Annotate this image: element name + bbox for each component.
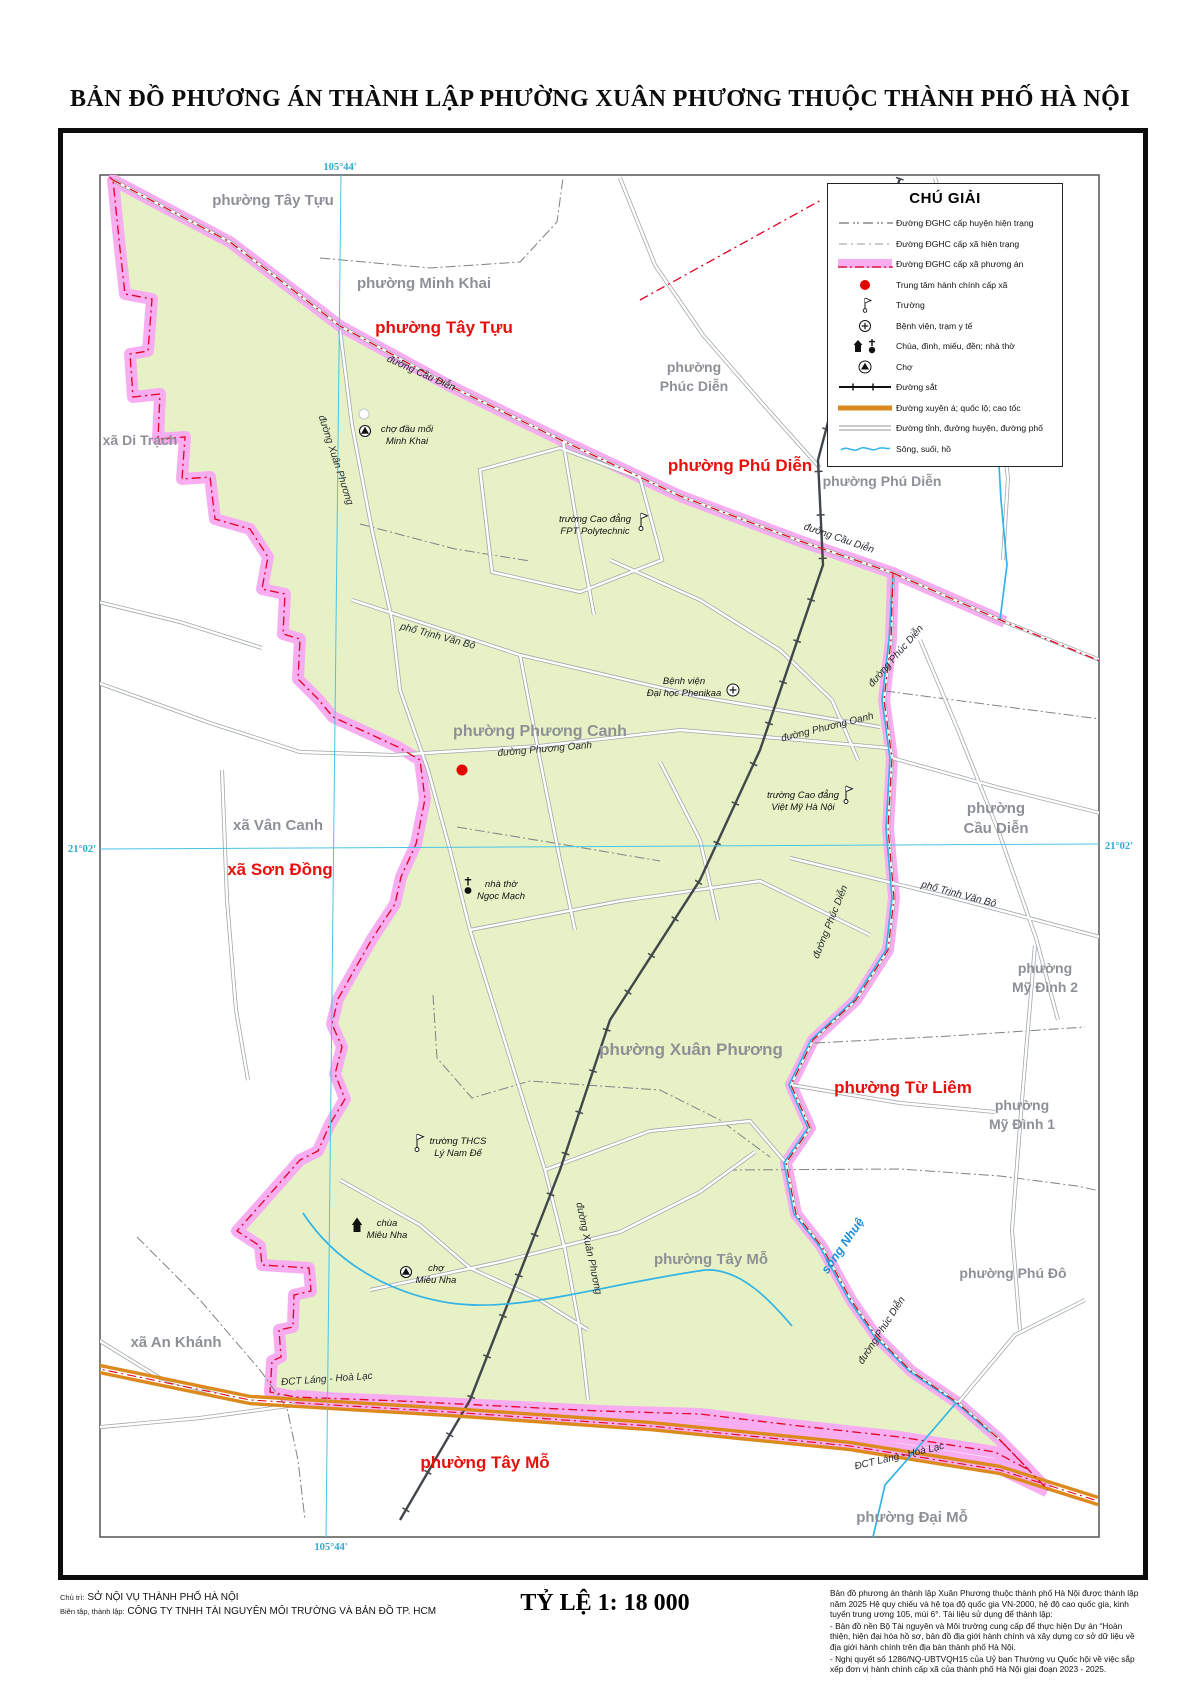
legend-item: Trường bbox=[834, 295, 1056, 316]
legend-box: CHÚ GIẢI Đường ĐGHC cấp huyện hiện trạng… bbox=[827, 183, 1063, 467]
legend-item: Đường ĐGHC cấp huyện hiện trạng bbox=[834, 213, 1056, 234]
school-icon bbox=[834, 296, 896, 314]
railway-icon bbox=[834, 380, 896, 394]
credit1-prefix: Chủ trì: bbox=[60, 1593, 85, 1602]
road-icon bbox=[834, 421, 896, 435]
legend-item: Chợ bbox=[834, 357, 1056, 378]
note-line: - Bản đồ nền Bộ Tài nguyên và Môi trường… bbox=[830, 1621, 1142, 1653]
legend-item: Đường xuyên á; quốc lộ; cao tốc bbox=[834, 398, 1056, 419]
credits: Chủ trì: SỞ NỘI VỤ THÀNH PHỐ HÀ NỘI Biên… bbox=[60, 1592, 436, 1620]
note-line: Bản đồ phương án thành lập Xuân Phương t… bbox=[830, 1588, 1142, 1620]
legend-title: CHÚ GIẢI bbox=[834, 190, 1056, 207]
credit2-prefix: Biên tập, thành lập: bbox=[60, 1607, 125, 1616]
credit2-text: CÔNG TY TNHH TÀI NGUYÊN MÔI TRƯỜNG VÀ BẢ… bbox=[127, 1606, 436, 1617]
legend-item: Chùa, đình, miếu, đền; nhà thờ bbox=[834, 336, 1056, 357]
map-notes: Bản đồ phương án thành lập Xuân Phương t… bbox=[830, 1588, 1142, 1676]
highway-icon bbox=[834, 401, 896, 415]
legend-item: Đường tỉnh, đường huyện, đường phố bbox=[834, 418, 1056, 439]
hospital-icon bbox=[834, 318, 896, 334]
market-icon bbox=[834, 359, 896, 375]
temple-church-icon bbox=[834, 337, 896, 355]
legend-item: Trung tâm hành chính cấp xã bbox=[834, 275, 1056, 296]
legend-item: Đường ĐGHC cấp xã hiện trạng bbox=[834, 234, 1056, 255]
admin-center-icon bbox=[834, 278, 896, 292]
legend-item: Đường sắt bbox=[834, 377, 1056, 398]
legend-item: Sông, suối, hồ bbox=[834, 439, 1056, 460]
boundary-commune-current-icon bbox=[834, 237, 896, 251]
note-line: - Nghị quyết số 1286/NQ-UBTVQH15 của Uỷ … bbox=[830, 1654, 1142, 1675]
legend-item: Đường ĐGHC cấp xã phương án bbox=[834, 254, 1056, 275]
credit1-text: SỞ NỘI VỤ THÀNH PHỐ HÀ NỘI bbox=[87, 1592, 238, 1603]
map-scale: TỶ LỆ 1: 18 000 bbox=[470, 1590, 740, 1617]
water-icon bbox=[834, 442, 896, 456]
map-sheet: BẢN ĐỒ PHƯƠNG ÁN THÀNH LẬP PHƯỜNG XUÂN P… bbox=[0, 0, 1200, 1697]
boundary-commune-proposed-icon bbox=[834, 256, 896, 272]
boundary-district-current-icon bbox=[834, 216, 896, 230]
legend-item: Bệnh viện, trạm y tế bbox=[834, 316, 1056, 337]
